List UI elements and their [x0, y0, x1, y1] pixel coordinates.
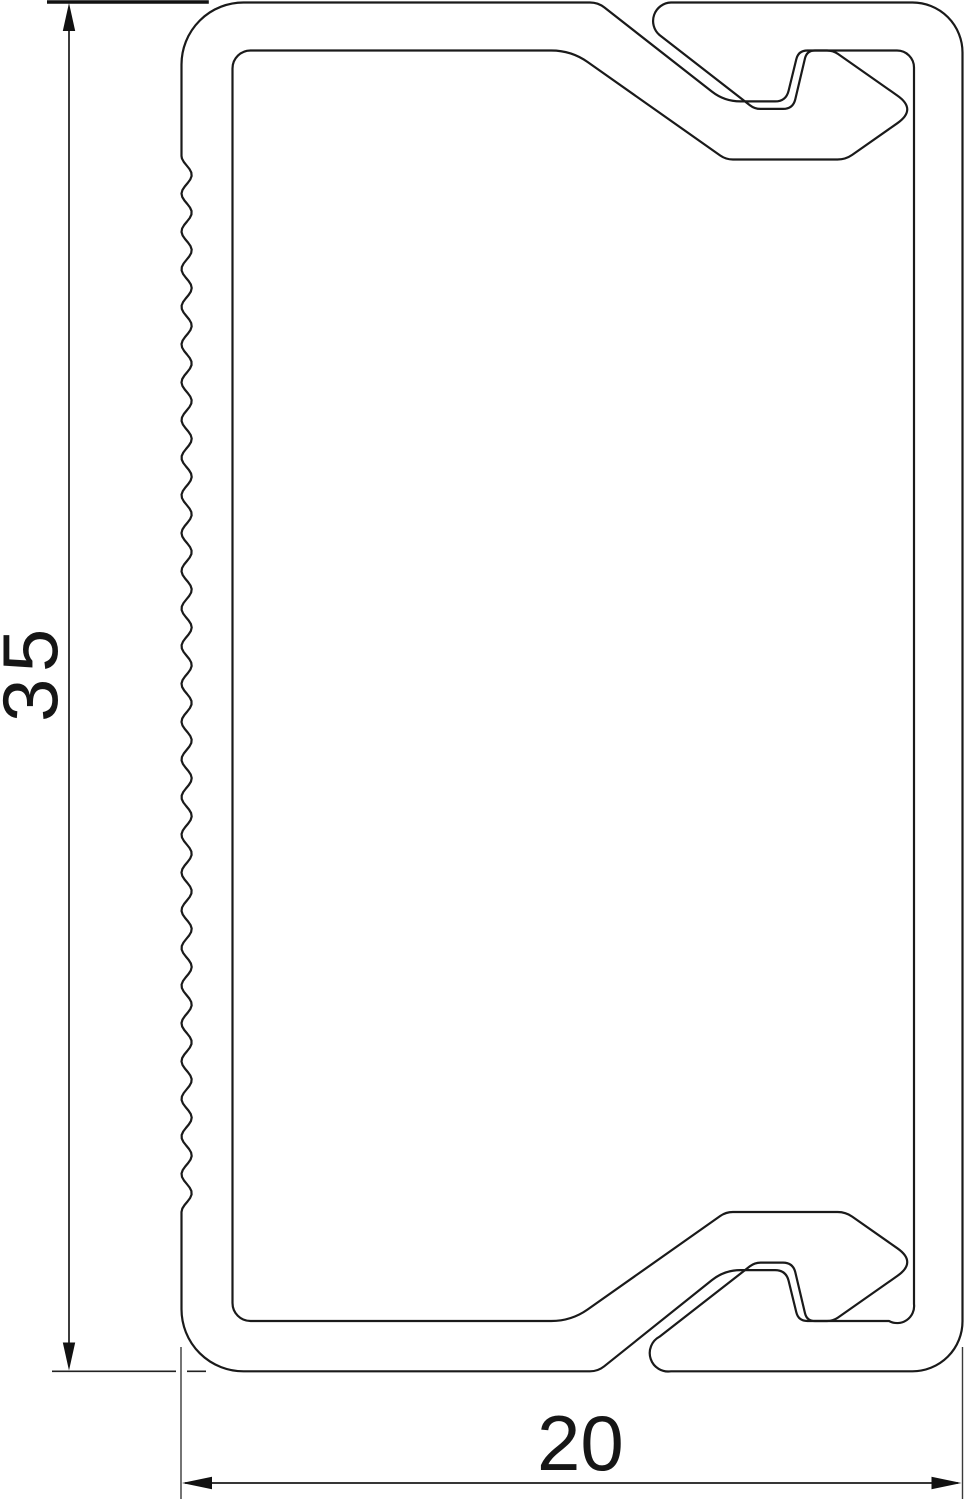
svg-text:20: 20: [537, 1399, 624, 1487]
svg-text:35: 35: [0, 622, 74, 722]
